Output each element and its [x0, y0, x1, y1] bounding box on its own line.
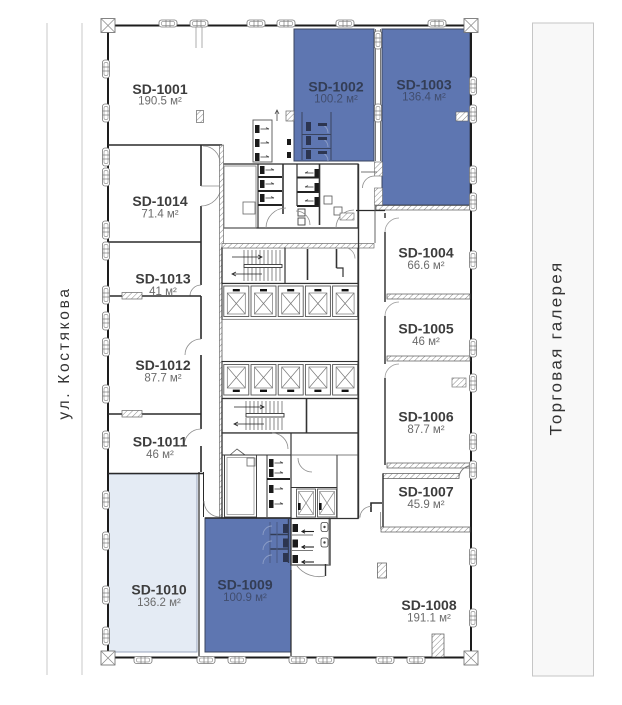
svg-text:SD-1003: SD-1003	[396, 77, 451, 93]
svg-text:SD-1006: SD-1006	[398, 409, 453, 425]
svg-text:41 м²: 41 м²	[149, 286, 177, 298]
svg-text:SD-1013: SD-1013	[135, 271, 190, 287]
svg-text:SD-1009: SD-1009	[217, 577, 272, 593]
svg-text:SD-1007: SD-1007	[398, 484, 453, 500]
svg-text:66.6 м²: 66.6 м²	[407, 260, 444, 272]
svg-text:ул. Костякова: ул. Костякова	[56, 286, 73, 419]
svg-text:SD-1002: SD-1002	[308, 79, 363, 95]
svg-text:100.2 м²: 100.2 м²	[314, 94, 358, 106]
svg-text:SD-1010: SD-1010	[131, 582, 186, 598]
svg-text:SD-1005: SD-1005	[398, 321, 453, 337]
svg-text:136.4 м²: 136.4 м²	[402, 92, 446, 104]
svg-text:100.9 м²: 100.9 м²	[223, 592, 267, 604]
svg-text:45.9 м²: 45.9 м²	[407, 499, 444, 511]
svg-text:136.2 м²: 136.2 м²	[137, 597, 181, 609]
svg-text:SD-1004: SD-1004	[398, 245, 453, 261]
svg-text:Торговая галерея: Торговая галерея	[547, 260, 566, 435]
svg-text:190.5 м²: 190.5 м²	[138, 96, 182, 108]
svg-text:SD-1008: SD-1008	[401, 597, 456, 613]
svg-text:191.1 м²: 191.1 м²	[407, 613, 451, 625]
svg-text:SD-1014: SD-1014	[132, 193, 187, 209]
svg-text:71.4 м²: 71.4 м²	[141, 209, 178, 221]
svg-text:87.7 м²: 87.7 м²	[407, 424, 444, 436]
svg-text:46 м²: 46 м²	[146, 449, 174, 461]
svg-text:SD-1011: SD-1011	[133, 434, 188, 450]
svg-text:SD-1012: SD-1012	[135, 357, 190, 373]
svg-text:46 м²: 46 м²	[412, 336, 440, 348]
svg-text:87.7 м²: 87.7 м²	[144, 373, 181, 385]
